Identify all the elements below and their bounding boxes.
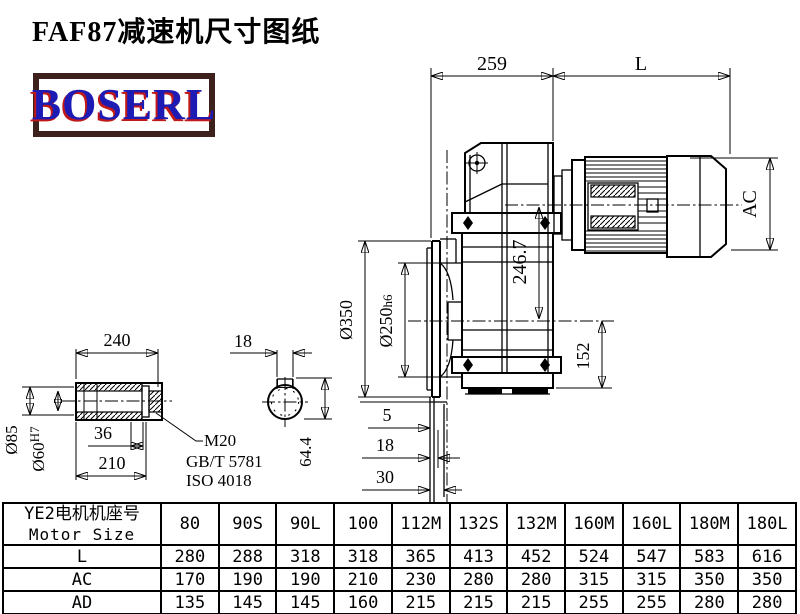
column-header: 100 <box>334 503 392 545</box>
table-cell: 145 <box>276 591 334 614</box>
note-iso: ISO 4018 <box>186 471 252 490</box>
table-cell: 135 <box>161 591 219 614</box>
dim-246-7: 246.7 <box>509 207 539 319</box>
shaft-section-detail: 18 64.4 <box>230 331 332 467</box>
column-header: 90L <box>276 503 334 545</box>
dim-spigot: Ø250h6 <box>376 294 396 348</box>
row-label: AC <box>3 568 161 591</box>
table-cell: 318 <box>276 545 334 568</box>
table-cell: 288 <box>219 545 277 568</box>
motor-stator <box>588 183 638 230</box>
motor <box>554 156 726 257</box>
bolt-crosshair-icon <box>466 152 488 174</box>
drawing-sheet: FAF87减速机尺寸图纸 BOSERL <box>0 0 800 614</box>
table-cell: 452 <box>507 545 565 568</box>
hollow-shaft-detail: 240 Ø85 Ø60H7 36 210 M20 GB/T 5781 ISO 4… <box>2 330 263 490</box>
table-cell: 413 <box>450 545 508 568</box>
table-cell: 170 <box>161 568 219 591</box>
centerlines <box>408 150 742 503</box>
table-header-en: Motor Size <box>4 525 160 544</box>
dim-key-height: 64.4 <box>296 437 315 467</box>
table-cell: 547 <box>623 545 681 568</box>
table-row: AC170190190210230280280315315350350 <box>3 568 796 591</box>
table-cell: 190 <box>276 568 334 591</box>
dim-flange-od: Ø350 <box>336 300 356 340</box>
dim-152: 152 <box>556 321 612 388</box>
motor-fins <box>585 161 667 251</box>
column-header: 180L <box>738 503 796 545</box>
table-cell: 583 <box>680 545 738 568</box>
dim-30: 30 <box>376 467 394 487</box>
dim-210: 210 <box>99 453 126 473</box>
table-cell: 280 <box>450 568 508 591</box>
column-header: 80 <box>161 503 219 545</box>
table-cell: 350 <box>680 568 738 591</box>
table-cell: 280 <box>680 591 738 614</box>
table-cell: 160 <box>334 591 392 614</box>
motor-size-table: YE2电机机座号Motor Size8090S90L100112M132S132… <box>2 502 797 614</box>
table-cell: 255 <box>565 591 623 614</box>
table-cell: 280 <box>507 568 565 591</box>
table-cell: 315 <box>565 568 623 591</box>
dim-5: 5 <box>383 405 392 425</box>
dim-85: Ø85 <box>2 425 21 454</box>
row-label: AD <box>3 591 161 614</box>
table-cell: 616 <box>738 545 796 568</box>
table-cell: 280 <box>738 591 796 614</box>
dim-240: 240 <box>104 330 131 350</box>
table-cell: 190 <box>219 568 277 591</box>
fan-cowl <box>667 156 726 257</box>
table-cell: 215 <box>450 591 508 614</box>
table-cell: 210 <box>334 568 392 591</box>
dim-L: L <box>635 53 647 75</box>
column-header: 180M <box>680 503 738 545</box>
table-row: AD135145145160215215215255255280280 <box>3 591 796 614</box>
table-cell: 215 <box>392 591 450 614</box>
table-cell: 315 <box>623 568 681 591</box>
gearbox-housing <box>452 143 561 394</box>
dim-AC: AC <box>739 190 761 218</box>
table-cell: 255 <box>623 591 681 614</box>
dim-36: 36 <box>94 423 112 443</box>
bolt-leader-line <box>156 413 203 441</box>
note-gbt: GB/T 5781 <box>186 452 263 471</box>
dim-key-width: 18 <box>234 331 252 351</box>
table-cell: 215 <box>507 591 565 614</box>
dim-flange-diameters: Ø350 Ø250h6 <box>336 241 440 397</box>
table-cell: 350 <box>738 568 796 591</box>
table-cell: 280 <box>161 545 219 568</box>
dim-259: 259 <box>477 53 507 75</box>
table-cell: 145 <box>219 591 277 614</box>
table-cell: 230 <box>392 568 450 591</box>
table-header-cn: YE2电机机座号 <box>4 504 160 524</box>
dim-60: Ø60H7 <box>27 426 48 472</box>
output-shaft-stub <box>360 397 447 503</box>
column-header: 160L <box>623 503 681 545</box>
column-header: 90S <box>219 503 277 545</box>
dim-AC: AC <box>690 158 778 250</box>
column-header: 132M <box>507 503 565 545</box>
table-row: L280288318318365413452524547583616 <box>3 545 796 568</box>
table-header-motor-size: YE2电机机座号Motor Size <box>3 503 161 545</box>
dim-18: 18 <box>376 435 394 455</box>
table-cell: 318 <box>334 545 392 568</box>
note-m20: M20 <box>204 431 236 450</box>
table-cell: 524 <box>565 545 623 568</box>
column-header: 132S <box>450 503 508 545</box>
row-label: L <box>3 545 161 568</box>
column-header: 160M <box>565 503 623 545</box>
dim-246-7: 246.7 <box>509 240 531 285</box>
dim-152: 152 <box>573 343 593 370</box>
table-cell: 365 <box>392 545 450 568</box>
column-header: 112M <box>392 503 450 545</box>
